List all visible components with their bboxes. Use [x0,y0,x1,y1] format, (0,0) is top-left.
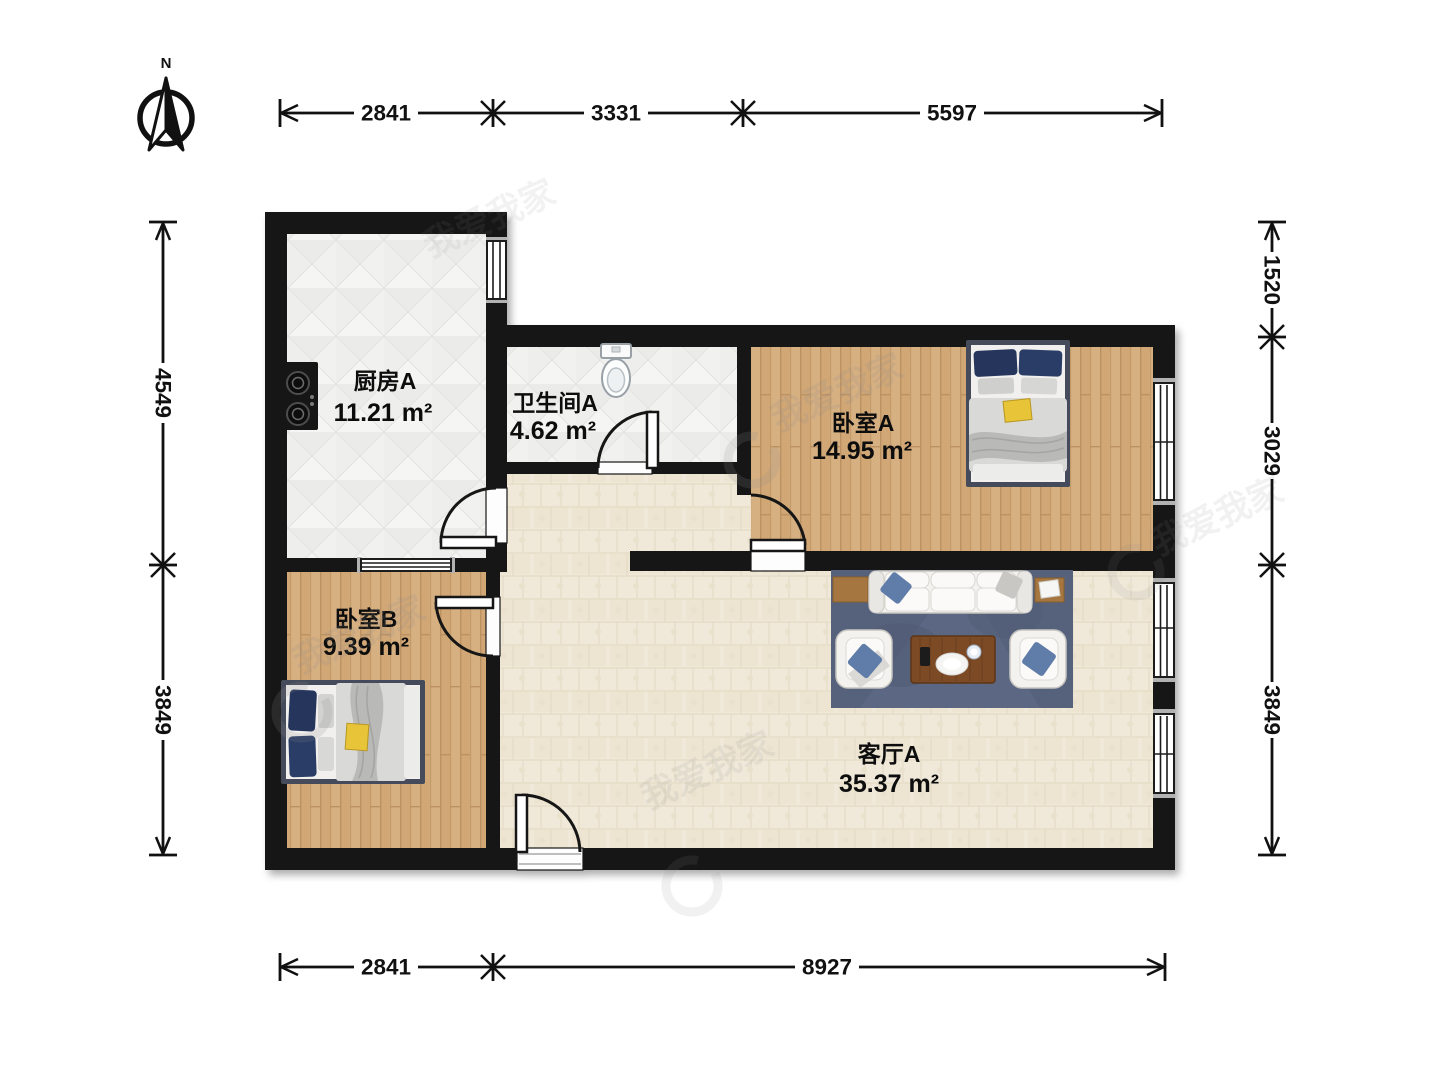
sofa-set [831,570,1073,708]
kitchen-area: 11.21 m² [334,399,433,427]
dimension-chain-left: 4549 3849 [149,222,177,855]
bathroom-label: 卫生间A [512,390,598,416]
dim-left-2: 3849 [151,685,176,735]
toilet [601,344,631,397]
living-window-upper [1153,578,1175,682]
dim-top-3: 5597 [927,101,977,126]
living-room-area: 35.37 m² [839,770,939,798]
dimension-chain-bottom: 2841 8927 [280,953,1165,981]
bedroom-a-area: 14.95 m² [812,437,912,465]
sofa [869,570,1032,613]
kitchen-label: 厨房A [354,368,417,394]
compass-north-label: N [161,55,172,72]
kitchen-door-threshold [486,488,507,543]
bathroom-area: 4.62 m² [510,417,596,445]
armchair-right [1010,630,1066,688]
living-room-label: 客厅A [858,741,921,767]
gas-stove [280,362,318,430]
north-compass-icon: N [140,55,192,150]
papers [1039,580,1060,598]
dim-top-2: 3331 [591,101,641,126]
dim-bottom-2: 8927 [802,955,852,980]
dim-top-1: 2841 [361,101,411,126]
bathroom-door-threshold [598,462,652,474]
bedroom-a-door-threshold [751,551,805,571]
kitchen-window [486,237,507,303]
side-table-left [833,577,868,602]
floor-plan-page: 厨房A 11.21 m² 卫生间A 4.62 m² 卧室A 14.95 m² 卧… [0,0,1440,1080]
dim-left-1: 4549 [151,368,176,418]
dimension-chain-top: 2841 3331 5597 [280,99,1162,127]
bed-bedroom-a [966,340,1070,487]
dim-right-2: 3029 [1260,426,1285,476]
living-window-lower [1153,709,1175,798]
dim-bottom-1: 2841 [361,955,411,980]
bed-bedroom-b [281,680,425,784]
dimension-chain-right: 1520 3029 3849 [1258,222,1286,855]
dim-right-3: 3849 [1260,685,1285,735]
bedroom-a-label: 卧室A [832,410,895,436]
armchair-left [836,630,892,688]
bedroom-a-window [1153,378,1175,505]
dim-right-1: 1520 [1260,255,1285,305]
bedroom-b-window [357,557,455,573]
floor-plan-canvas: 厨房A 11.21 m² 卫生间A 4.62 m² 卧室A 14.95 m² 卧… [0,0,1440,1080]
coffee-table [911,636,995,683]
